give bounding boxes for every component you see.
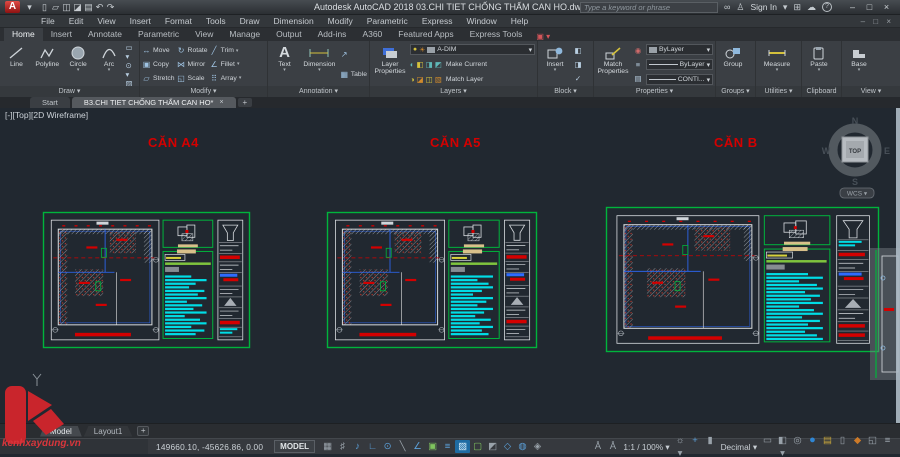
panel-label-block[interactable]: Block ▾ xyxy=(538,86,593,97)
maximize-button[interactable]: □ xyxy=(861,2,878,12)
match-properties-button[interactable]: Match Properties xyxy=(596,43,630,86)
annotation-visibility-icon[interactable]: Å xyxy=(590,440,605,453)
polyline-icon xyxy=(39,45,55,61)
leader-button[interactable]: ↗ xyxy=(340,48,367,60)
layer-select[interactable]: ●☀ A-DIM▾ xyxy=(410,44,535,55)
circle-icon xyxy=(70,45,86,61)
rotate-icon: ↻ xyxy=(177,46,186,55)
object-color-select[interactable]: ByLayer▾ xyxy=(646,44,713,55)
panel-label-groups[interactable]: Groups ▾ xyxy=(716,86,755,97)
menu-bar: FileEditViewInsertFormatToolsDrawDimensi… xyxy=(0,15,900,28)
panel-draw: Line Polyline Circle▾ Arc▾ ▭ ▾ ⊙ ▾ ▨ xyxy=(0,41,140,97)
cad-drawing-can-a5[interactable] xyxy=(328,213,537,348)
group-button[interactable]: Group xyxy=(718,43,748,86)
lineweight-icon[interactable]: ≡ xyxy=(440,440,455,453)
open-file-icon[interactable]: ▱ xyxy=(50,1,61,14)
text-icon: A xyxy=(279,45,290,61)
new-file-icon[interactable]: ▯ xyxy=(39,1,50,14)
ribbon-tab-express-tools[interactable]: Express Tools xyxy=(462,28,531,41)
threed-object-snap-icon[interactable]: ◩ xyxy=(485,440,500,453)
dropdown-caret-icon[interactable]: ▾ xyxy=(783,2,788,13)
quick-properties-icon[interactable]: ◧ ▾ xyxy=(775,434,790,457)
clean-screen-doc-icon[interactable]: ▯ xyxy=(835,434,850,457)
block-attributes-icon[interactable]: ✓ xyxy=(575,74,581,83)
stretch-button[interactable]: ▱Stretch xyxy=(142,72,175,84)
layer-walk-icon[interactable]: ▧ xyxy=(435,75,442,84)
fillet-icon: ∠ xyxy=(210,60,219,69)
insert-block-icon xyxy=(546,45,564,61)
trim-button[interactable]: ╱Trim▾ xyxy=(210,45,242,57)
dynamic-ucs-icon[interactable]: ◇ xyxy=(500,440,515,453)
model-space-button[interactable]: MODEL xyxy=(274,440,315,453)
tab-model[interactable]: Model xyxy=(40,426,82,437)
line-icon xyxy=(8,45,24,61)
move-button[interactable]: ↔Move xyxy=(142,45,175,57)
cad-drawing-can-a4[interactable] xyxy=(44,213,250,348)
lineweight-select[interactable]: ByLayer▾ xyxy=(646,59,713,70)
move-icon: ↔ xyxy=(142,46,151,55)
svg-text:N: N xyxy=(852,116,859,126)
security-lock-icon[interactable]: ◆ xyxy=(850,434,865,457)
cad-drawing-partial[interactable] xyxy=(870,248,900,380)
copy-button[interactable]: ▣Copy xyxy=(142,58,175,70)
coordinates-readout: 149660.10, -45626.86, 0.00 xyxy=(150,442,269,452)
layer-lock-icon[interactable]: ◩ xyxy=(435,60,442,69)
polar-tracking-icon[interactable]: ⊙ xyxy=(380,440,395,453)
create-block-icon[interactable]: ◧ xyxy=(574,46,581,55)
linetype-select[interactable]: CONTI...▾ xyxy=(646,74,713,85)
title-bar: A ▾ ▯▱◫◪▤↶↷ Autodesk AutoCAD 2018 03.CHI… xyxy=(0,0,900,15)
units-select[interactable]: Decimal ▾ xyxy=(718,442,760,452)
ribbon: Line Polyline Circle▾ Arc▾ ▭ ▾ ⊙ ▾ ▨ xyxy=(0,41,900,97)
ribbon-tab-bar: HomeInsertAnnotateParametricViewManageOu… xyxy=(0,28,900,41)
circle-button[interactable]: Circle▾ xyxy=(64,43,93,86)
sign-in-button[interactable]: Sign In xyxy=(750,2,776,12)
undo-icon[interactable]: ↶ xyxy=(94,1,105,14)
svg-text:TOP: TOP xyxy=(849,149,861,155)
file-tab-bar: Start B3.CHI TIET CHỐNG THẤM CAN HO* × + xyxy=(0,97,900,108)
ribbon-tab-home[interactable]: Home xyxy=(4,28,43,41)
save-as-icon[interactable]: ◪ xyxy=(72,1,83,14)
selection-filter-icon[interactable]: ◍ xyxy=(515,440,530,453)
panel-label-utilities[interactable]: Utilities ▾ xyxy=(756,86,801,97)
base-button[interactable]: Base▾ xyxy=(844,43,874,86)
tab-close-icon[interactable]: × xyxy=(219,99,223,106)
polyline-button[interactable]: Polyline xyxy=(33,43,62,86)
canvas-scrollbar[interactable] xyxy=(896,108,900,423)
menu-edit[interactable]: Edit xyxy=(62,16,91,26)
rotate-button[interactable]: ↻Rotate xyxy=(177,45,208,57)
array-button[interactable]: ⠿Array▾ xyxy=(210,72,242,84)
panel-block: Insert▾ ◧ ◨ ✓ Block ▾ xyxy=(538,41,594,97)
measure-icon xyxy=(767,45,787,61)
mirror-icon: ⋈ xyxy=(177,60,186,69)
dimension-icon xyxy=(308,45,330,61)
ribbon-tab-add-ins[interactable]: Add-ins xyxy=(310,28,355,41)
panel-label-clipboard[interactable]: Clipboard xyxy=(802,86,841,97)
fillet-button[interactable]: ∠Fillet▾ xyxy=(210,58,242,70)
tab-layout1[interactable]: Layout1 xyxy=(84,426,132,437)
viewcube[interactable]: TOPNSWEWCS ▾ xyxy=(822,116,890,198)
mirror-button[interactable]: ⋈Mirror xyxy=(177,58,208,70)
ribbon-tab-featured-apps[interactable]: Featured Apps xyxy=(390,28,461,41)
drawing-title-can-b: CĂN B xyxy=(714,135,758,150)
menu-parametric[interactable]: Parametric xyxy=(360,16,415,26)
paste-clipboard-icon xyxy=(811,45,827,61)
trusted-autodesk-icon[interactable]: ▤ xyxy=(820,434,835,457)
panel-properties: Match Properties ◉ ≡ ▤ ByLayer▾ ByLayer▾… xyxy=(594,41,716,97)
panel-layers: Layer Properties ●☀ A-DIM▾ ◐ ◧ ◨ ◩ Make … xyxy=(370,41,538,97)
selection-cycling-icon[interactable]: ▢ xyxy=(470,440,485,453)
close-button[interactable]: × xyxy=(878,2,895,12)
drawing-canvas[interactable]: TOPNSWEWCS ▾ [-][Top][2D Wireframe] CĂN … xyxy=(0,108,900,423)
array-icon: ⠿ xyxy=(210,74,219,83)
svg-text:E: E xyxy=(884,146,890,156)
scale-icon: ◱ xyxy=(177,74,186,83)
panel-label-properties[interactable]: Properties ▾ xyxy=(594,86,715,97)
viewport-controls[interactable]: [-][Top][2D Wireframe] xyxy=(5,110,88,120)
line-button[interactable]: Line xyxy=(2,43,31,86)
menu-help[interactable]: Help xyxy=(504,16,535,26)
svg-text:S: S xyxy=(852,177,858,187)
help-icon[interactable]: ? xyxy=(822,2,832,12)
layer-on-icon[interactable]: ◑ xyxy=(410,75,415,84)
panel-groups: Group Groups ▾ xyxy=(716,41,756,97)
base-view-icon xyxy=(851,45,867,61)
a360-cloud-icon[interactable]: ☁ xyxy=(807,2,816,13)
wcs-select[interactable]: WCS ▾ xyxy=(840,188,874,198)
save-icon[interactable]: ◫ xyxy=(61,1,72,14)
table-icon: ▦ xyxy=(340,70,349,79)
graphics-performance-icon[interactable]: ● xyxy=(805,434,820,457)
panel-label-layers[interactable]: Layers ▾ xyxy=(370,86,537,97)
layer-thaw-icon[interactable]: ◪ xyxy=(417,75,424,84)
layer-freeze-icon[interactable]: ◨ xyxy=(426,60,433,69)
ribbon-tab-insert[interactable]: Insert xyxy=(43,28,80,41)
grid-display-icon[interactable]: ▦ xyxy=(320,440,335,453)
table-button[interactable]: ▦ Table xyxy=(340,69,367,81)
ribbon-tab-annotate[interactable]: Annotate xyxy=(80,28,130,41)
menu-modify[interactable]: Modify xyxy=(321,16,360,26)
gizmo-icon[interactable]: ◈ xyxy=(530,440,545,453)
paste-button[interactable]: Paste▾ xyxy=(804,43,834,86)
panel-modify: ↔Move▣Copy▱Stretch↻Rotate⋈Mirror◱Scale╱T… xyxy=(140,41,268,97)
menu-view[interactable]: View xyxy=(90,16,122,26)
app-store-cart-icon[interactable]: ⊞ xyxy=(793,2,801,13)
color-wheel-icon[interactable]: ◉ xyxy=(635,46,642,55)
menu-dimension[interactable]: Dimension xyxy=(267,16,321,26)
workspace-switching-icon[interactable]: + xyxy=(688,434,703,457)
plot-icon[interactable]: ▤ xyxy=(83,1,94,14)
tab-drawing[interactable]: B3.CHI TIET CHỐNG THẤM CAN HO* × xyxy=(72,97,236,108)
scale-button[interactable]: ◱Scale xyxy=(177,72,208,84)
menu-format[interactable]: Format xyxy=(158,16,199,26)
object-snap-tracking-icon[interactable]: ∠ xyxy=(410,440,425,453)
plot-style-icon[interactable]: ▤ xyxy=(634,74,641,83)
text-button[interactable]: A Text▾ xyxy=(270,43,299,86)
user-icon: ♙ xyxy=(736,2,744,13)
object-snap-icon[interactable]: ▣ xyxy=(425,440,440,453)
menu-window[interactable]: Window xyxy=(460,16,504,26)
panel-annotation: A Text▾ Dimension▾ ↗ ▦ Table Annotation … xyxy=(268,41,370,97)
svg-text:WCS ▾: WCS ▾ xyxy=(847,191,868,198)
hatch-tool-icon[interactable]: ▨ ▾ xyxy=(125,79,137,86)
annotation-monitor-icon[interactable]: ▮ xyxy=(703,434,718,457)
ucs-marker xyxy=(33,374,41,386)
units-icon[interactable]: ▭ xyxy=(760,434,775,457)
stretch-icon: ▱ xyxy=(142,74,151,83)
snap-mode-icon[interactable]: ♯ xyxy=(335,440,350,453)
panel-clipboard: Paste▾ Clipboard xyxy=(802,41,842,97)
minimize-button[interactable]: – xyxy=(844,2,861,12)
panel-view: Base▾ View ▾ xyxy=(842,41,900,97)
svg-text:W: W xyxy=(822,146,831,156)
transparency-icon[interactable]: ▨ xyxy=(455,440,470,453)
ribbon-tab-a360[interactable]: A360 xyxy=(354,28,390,41)
ellipse-tool-icon[interactable]: ⊙ ▾ xyxy=(125,61,137,79)
copy-icon: ▣ xyxy=(142,60,151,69)
arc-icon xyxy=(101,45,117,61)
search-input[interactable]: Type a keyword or phrase xyxy=(580,2,718,13)
lineweight-list-icon[interactable]: ≡ xyxy=(636,60,640,69)
document-window-controls[interactable]: – □ × xyxy=(861,17,900,26)
ribbon-tab-manage[interactable]: Manage xyxy=(221,28,268,41)
isometric-drafting-icon[interactable]: ╲ xyxy=(395,440,410,453)
redo-icon[interactable]: ↷ xyxy=(105,1,116,14)
trim-icon: ╱ xyxy=(210,46,219,55)
ribbon-tab-output[interactable]: Output xyxy=(268,28,310,41)
quick-access-toolbar: ▯▱◫◪▤↶↷ xyxy=(39,1,116,14)
menu-file[interactable]: File xyxy=(34,16,62,26)
make-current-button[interactable]: Make Current xyxy=(446,61,487,68)
autocad-logo-icon[interactable]: A xyxy=(5,1,20,13)
arc-button[interactable]: Arc▾ xyxy=(95,43,124,86)
dimension-button[interactable]: Dimension▾ xyxy=(301,43,338,86)
panel-label-annotation[interactable]: Annotation ▾ xyxy=(268,86,369,97)
isolate-objects-icon[interactable]: ◎ xyxy=(790,434,805,457)
group-icon xyxy=(724,45,742,61)
tab-start[interactable]: Start xyxy=(30,97,70,108)
cad-drawing-can-b[interactable] xyxy=(607,208,879,352)
layer-isolate-icon[interactable]: ◧ xyxy=(417,60,424,69)
annotation-scale-select[interactable]: 1:1 / 100% ▾ xyxy=(620,442,672,452)
menu-tools[interactable]: Tools xyxy=(199,16,233,26)
menu-insert[interactable]: Insert xyxy=(123,16,158,26)
search-binoculars-icon[interactable]: ∞ xyxy=(724,2,730,12)
drawing-title-can-a4: CĂN A4 xyxy=(148,135,199,150)
annotation-scale-gear-icon[interactable]: ☼ ▾ xyxy=(673,434,688,457)
qat-caret-icon[interactable]: ▾ xyxy=(24,1,35,14)
annotation-autoscale-icon[interactable]: Å xyxy=(605,440,620,453)
panel-label-modify[interactable]: Modify ▾ xyxy=(140,86,267,97)
new-tab-button[interactable]: + xyxy=(238,98,253,107)
clean-screen-icon[interactable]: ◱ xyxy=(865,434,880,457)
layer-properties-icon xyxy=(381,45,399,61)
ribbon-tab-parametric[interactable]: Parametric xyxy=(130,28,187,41)
panel-label-draw[interactable]: Draw ▾ xyxy=(0,86,139,97)
match-layer-button[interactable]: Match Layer xyxy=(446,76,483,83)
layer-properties-button[interactable]: Layer Properties xyxy=(372,43,408,86)
menu-express[interactable]: Express xyxy=(415,16,460,26)
layer-unlock-icon[interactable]: ◫ xyxy=(426,75,433,84)
edit-block-icon[interactable]: ◨ xyxy=(574,60,581,69)
rectangle-tool-icon[interactable]: ▭ ▾ xyxy=(125,43,137,61)
ribbon-tab-view[interactable]: View xyxy=(187,28,221,41)
new-layout-button[interactable]: + xyxy=(137,426,149,436)
ortho-mode-icon[interactable]: ∟ xyxy=(365,440,380,453)
cad-viewport[interactable]: TOPNSWEWCS ▾ xyxy=(0,108,900,423)
insert-button[interactable]: Insert▾ xyxy=(540,43,570,86)
match-properties-icon xyxy=(604,45,622,61)
customization-icon[interactable]: ≡ xyxy=(880,434,895,457)
menu-draw[interactable]: Draw xyxy=(233,16,267,26)
ribbon-display-toggle-icon[interactable]: ▣ ▾ xyxy=(536,32,550,41)
drawing-title-can-a5: CĂN A5 xyxy=(430,135,481,150)
dynamic-input-icon[interactable]: ♪ xyxy=(350,440,365,453)
measure-button[interactable]: Measure▾ xyxy=(758,43,796,86)
panel-label-view[interactable]: View ▾ xyxy=(842,86,900,97)
panel-utilities: Measure▾ Utilities ▾ xyxy=(756,41,802,97)
layer-off-icon[interactable]: ◐ xyxy=(410,60,415,69)
